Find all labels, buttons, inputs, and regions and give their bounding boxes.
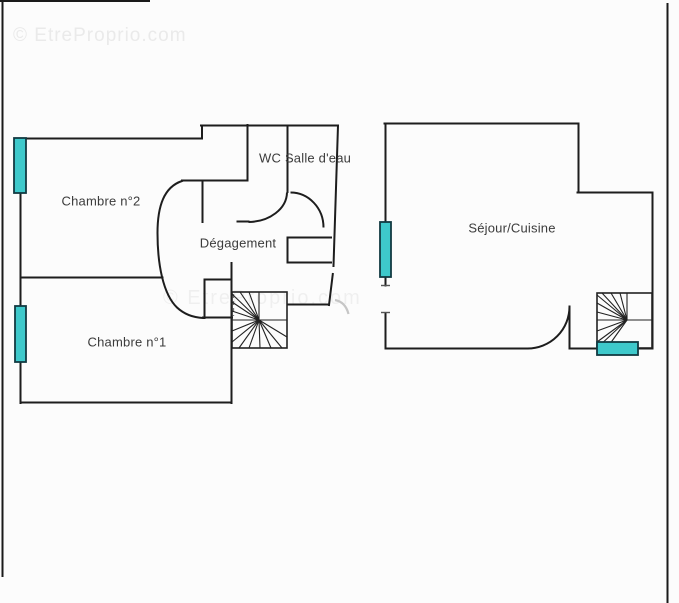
room-label-wc: WC (259, 151, 281, 166)
door-swing-arc (528, 307, 570, 349)
room-label-salle-deau: Salle d'eau (285, 151, 351, 166)
left-unit-floorplan (21, 125, 339, 403)
door-swing-arc (335, 300, 349, 314)
door-opening-ticks (381, 286, 390, 313)
image-frame (0, 0, 668, 603)
room-label-chambre1: Chambre n°1 (88, 335, 167, 350)
spiral-staircase-symbol (232, 292, 287, 348)
floorplan-drawing (0, 0, 679, 603)
spiral-staircase-symbol (597, 293, 652, 348)
floorplan-image: © EtreProprio.com © EtreProprio.com (0, 0, 679, 603)
room-label-sejour-cuisine: Séjour/Cuisine (468, 221, 555, 236)
room-label-degagement: Dégagement (200, 236, 276, 251)
door-swing-arc (249, 193, 324, 228)
right-unit-floorplan (385, 124, 653, 349)
room-label-chambre2: Chambre n°2 (62, 194, 141, 209)
window-symbol (380, 222, 638, 355)
